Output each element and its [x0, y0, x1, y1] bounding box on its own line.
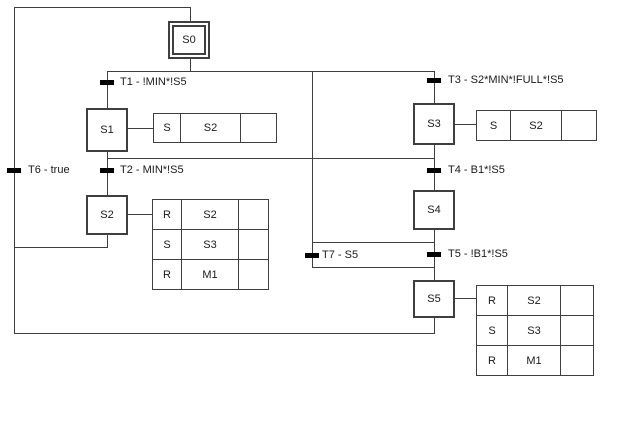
action-row: R M1: [153, 260, 269, 290]
transition-t5-tick[interactable]: [427, 252, 441, 257]
transition-t4-label: T4 - B1*!S5: [448, 164, 505, 177]
transition-t1-tick[interactable]: [100, 80, 114, 85]
step-s1-label: S1: [100, 124, 113, 136]
connector-s1-action: [128, 128, 153, 129]
rail-divergence-bottom: [312, 242, 435, 243]
transition-t3-label: T3 - S2*MIN*!FULL*!S5: [448, 74, 564, 87]
action-target-cell[interactable]: S2: [182, 200, 239, 230]
edge-s2-return-horizontal: [14, 247, 108, 248]
step-s0-initial[interactable]: S0: [168, 21, 210, 59]
action-qualifier-cell[interactable]: R: [153, 200, 182, 230]
action-block-s5[interactable]: R S2 S S3 R M1: [476, 285, 594, 376]
action-extra-cell[interactable]: [561, 316, 594, 346]
action-qualifier-cell[interactable]: S: [153, 230, 182, 260]
edge-top-horizontal: [14, 7, 191, 8]
action-row: R S2: [153, 200, 269, 230]
edge-t3-leg: [434, 71, 435, 103]
transition-t6-label: T6 - true: [28, 164, 70, 177]
step-s1[interactable]: S1: [86, 108, 128, 152]
action-extra-cell[interactable]: [239, 260, 269, 290]
action-qualifier-cell[interactable]: R: [477, 286, 508, 316]
edge-t1-leg: [107, 71, 108, 108]
action-extra-cell[interactable]: [239, 230, 269, 260]
action-extra-cell[interactable]: [241, 114, 277, 143]
edge-s5-bottom-drop: [434, 318, 435, 333]
transition-t2-label: T2 - MIN*!S5: [120, 164, 184, 177]
action-row: S S3: [153, 230, 269, 260]
edge-middle-vertical: [312, 71, 313, 268]
action-row: R M1: [477, 346, 594, 376]
action-extra-cell[interactable]: [562, 111, 597, 141]
transition-t3-tick[interactable]: [427, 78, 441, 83]
action-qualifier-cell[interactable]: R: [153, 260, 182, 290]
action-target-cell[interactable]: S2: [511, 111, 562, 141]
rail-divergence-top: [107, 71, 435, 72]
edge-bottom-return-horizontal: [14, 333, 435, 334]
action-qualifier-cell[interactable]: R: [477, 346, 508, 376]
connector-s5-action: [455, 298, 476, 299]
action-target-cell[interactable]: S2: [181, 114, 241, 143]
step-s5[interactable]: S5: [413, 280, 455, 318]
step-s2[interactable]: S2: [86, 195, 128, 235]
rail-middle: [107, 158, 435, 159]
step-s5-label: S5: [427, 293, 440, 305]
action-extra-cell[interactable]: [239, 200, 269, 230]
rail-convergence-bottom: [312, 267, 435, 268]
transition-t1-label: T1 - !MIN*!S5: [120, 76, 187, 89]
sfc-diagram: T1 - !MIN*!S5 T2 - MIN*!S5 T3 - S2*MIN*!…: [0, 0, 642, 440]
action-block-s1[interactable]: S S2: [153, 113, 277, 143]
action-extra-cell[interactable]: [561, 286, 594, 316]
action-extra-cell[interactable]: [561, 346, 594, 376]
step-s2-label: S2: [100, 209, 113, 221]
action-target-cell[interactable]: S2: [508, 286, 561, 316]
action-block-s2[interactable]: R S2 S S3 R M1: [152, 199, 269, 290]
action-block-s3[interactable]: S S2: [476, 110, 597, 141]
action-row: R S2: [477, 286, 594, 316]
transition-t5-label: T5 - !B1*!S5: [448, 248, 508, 261]
transition-t7-tick[interactable]: [305, 253, 319, 258]
step-s3[interactable]: S3: [413, 103, 455, 145]
transition-t7-label: T7 - S5: [322, 249, 358, 262]
edge-s0-top-stub: [190, 7, 191, 22]
transition-t2-tick[interactable]: [100, 168, 114, 173]
edge-s0-bottom-stub: [190, 59, 191, 71]
step-s4[interactable]: S4: [413, 190, 455, 230]
transition-t6-tick[interactable]: [7, 168, 21, 173]
action-row: S S3: [477, 316, 594, 346]
action-qualifier-cell[interactable]: S: [477, 111, 511, 141]
action-qualifier-cell[interactable]: S: [154, 114, 181, 143]
step-s0-label: S0: [182, 34, 195, 46]
step-s0-inner-border: S0: [172, 25, 206, 55]
action-row: S S2: [477, 111, 597, 141]
action-target-cell[interactable]: S3: [508, 316, 561, 346]
action-qualifier-cell[interactable]: S: [477, 316, 508, 346]
action-target-cell[interactable]: M1: [508, 346, 561, 376]
connector-s2-action: [128, 214, 152, 215]
action-row: S S2: [154, 114, 277, 143]
action-target-cell[interactable]: S3: [182, 230, 239, 260]
action-target-cell[interactable]: M1: [182, 260, 239, 290]
step-s3-label: S3: [427, 118, 440, 130]
connector-s3-action: [455, 124, 476, 125]
step-s4-label: S4: [427, 204, 440, 216]
transition-t4-tick[interactable]: [427, 168, 441, 173]
